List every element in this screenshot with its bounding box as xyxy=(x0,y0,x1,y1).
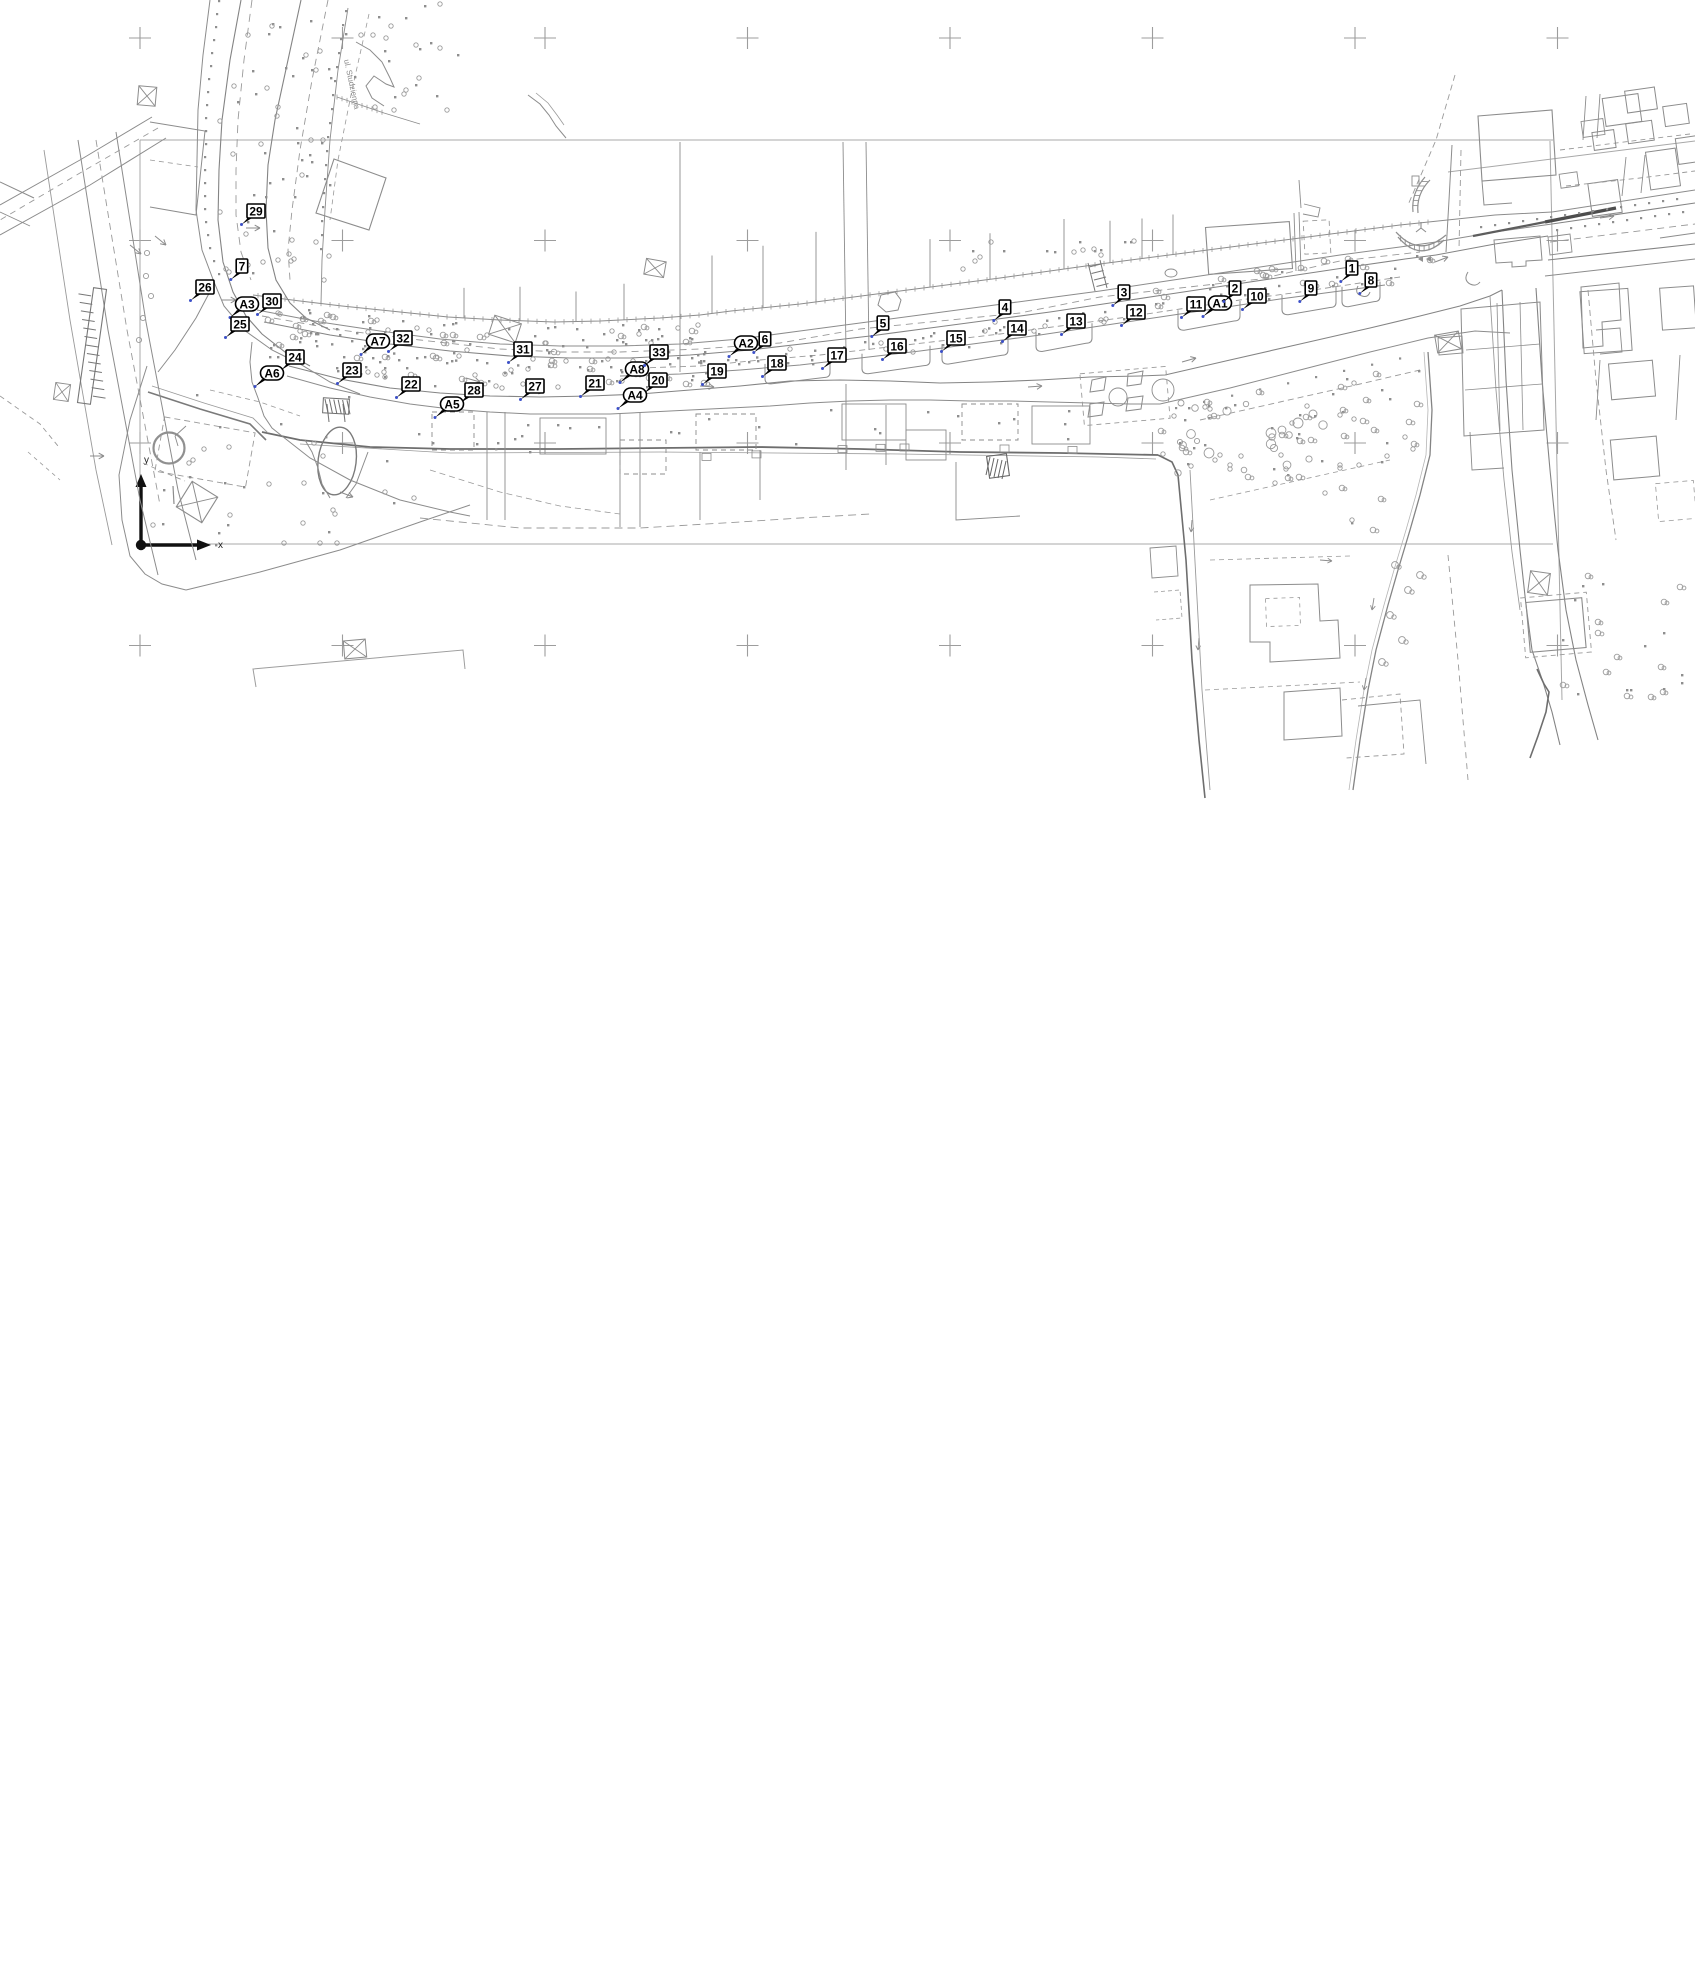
svg-text:25: 25 xyxy=(233,317,247,331)
svg-text:A7: A7 xyxy=(370,334,386,348)
svg-text:16: 16 xyxy=(890,339,904,353)
svg-text:24: 24 xyxy=(288,350,302,364)
svg-text:20: 20 xyxy=(651,373,665,387)
svg-text:26: 26 xyxy=(198,280,212,294)
svg-text:15: 15 xyxy=(949,331,963,345)
svg-text:A2: A2 xyxy=(738,336,754,350)
svg-text:8: 8 xyxy=(1368,273,1375,287)
svg-text:21: 21 xyxy=(588,376,602,390)
svg-text:11: 11 xyxy=(1190,297,1203,311)
svg-text:30: 30 xyxy=(265,294,279,308)
svg-text:12: 12 xyxy=(1129,305,1143,319)
svg-text:23: 23 xyxy=(345,363,359,377)
svg-text:A8: A8 xyxy=(629,362,645,376)
svg-text:9: 9 xyxy=(1308,281,1315,295)
svg-text:A1: A1 xyxy=(1212,296,1228,310)
svg-text:22: 22 xyxy=(404,377,418,391)
svg-text:31: 31 xyxy=(516,342,530,356)
svg-text:13: 13 xyxy=(1069,314,1083,328)
svg-text:29: 29 xyxy=(249,204,263,218)
svg-text:7: 7 xyxy=(239,259,246,273)
svg-text:19: 19 xyxy=(710,364,724,378)
svg-text:A3: A3 xyxy=(239,297,255,311)
svg-text:10: 10 xyxy=(1250,289,1264,303)
svg-text:5: 5 xyxy=(880,316,887,330)
svg-text:A5: A5 xyxy=(444,397,460,411)
svg-text:27: 27 xyxy=(528,379,542,393)
svg-text:33: 33 xyxy=(652,345,666,359)
svg-text:4: 4 xyxy=(1002,300,1009,314)
svg-text:14: 14 xyxy=(1010,321,1024,335)
svg-text:2: 2 xyxy=(1232,281,1239,295)
svg-text:28: 28 xyxy=(467,383,481,397)
svg-text:17: 17 xyxy=(830,348,844,362)
svg-text:3: 3 xyxy=(1121,285,1128,299)
svg-text:1: 1 xyxy=(1349,261,1356,275)
svg-text:x: x xyxy=(218,540,223,551)
svg-text:32: 32 xyxy=(396,331,410,345)
svg-text:6: 6 xyxy=(762,332,769,346)
svg-text:A4: A4 xyxy=(627,388,643,402)
svg-text:18: 18 xyxy=(770,356,784,370)
svg-text:A6: A6 xyxy=(264,366,280,380)
